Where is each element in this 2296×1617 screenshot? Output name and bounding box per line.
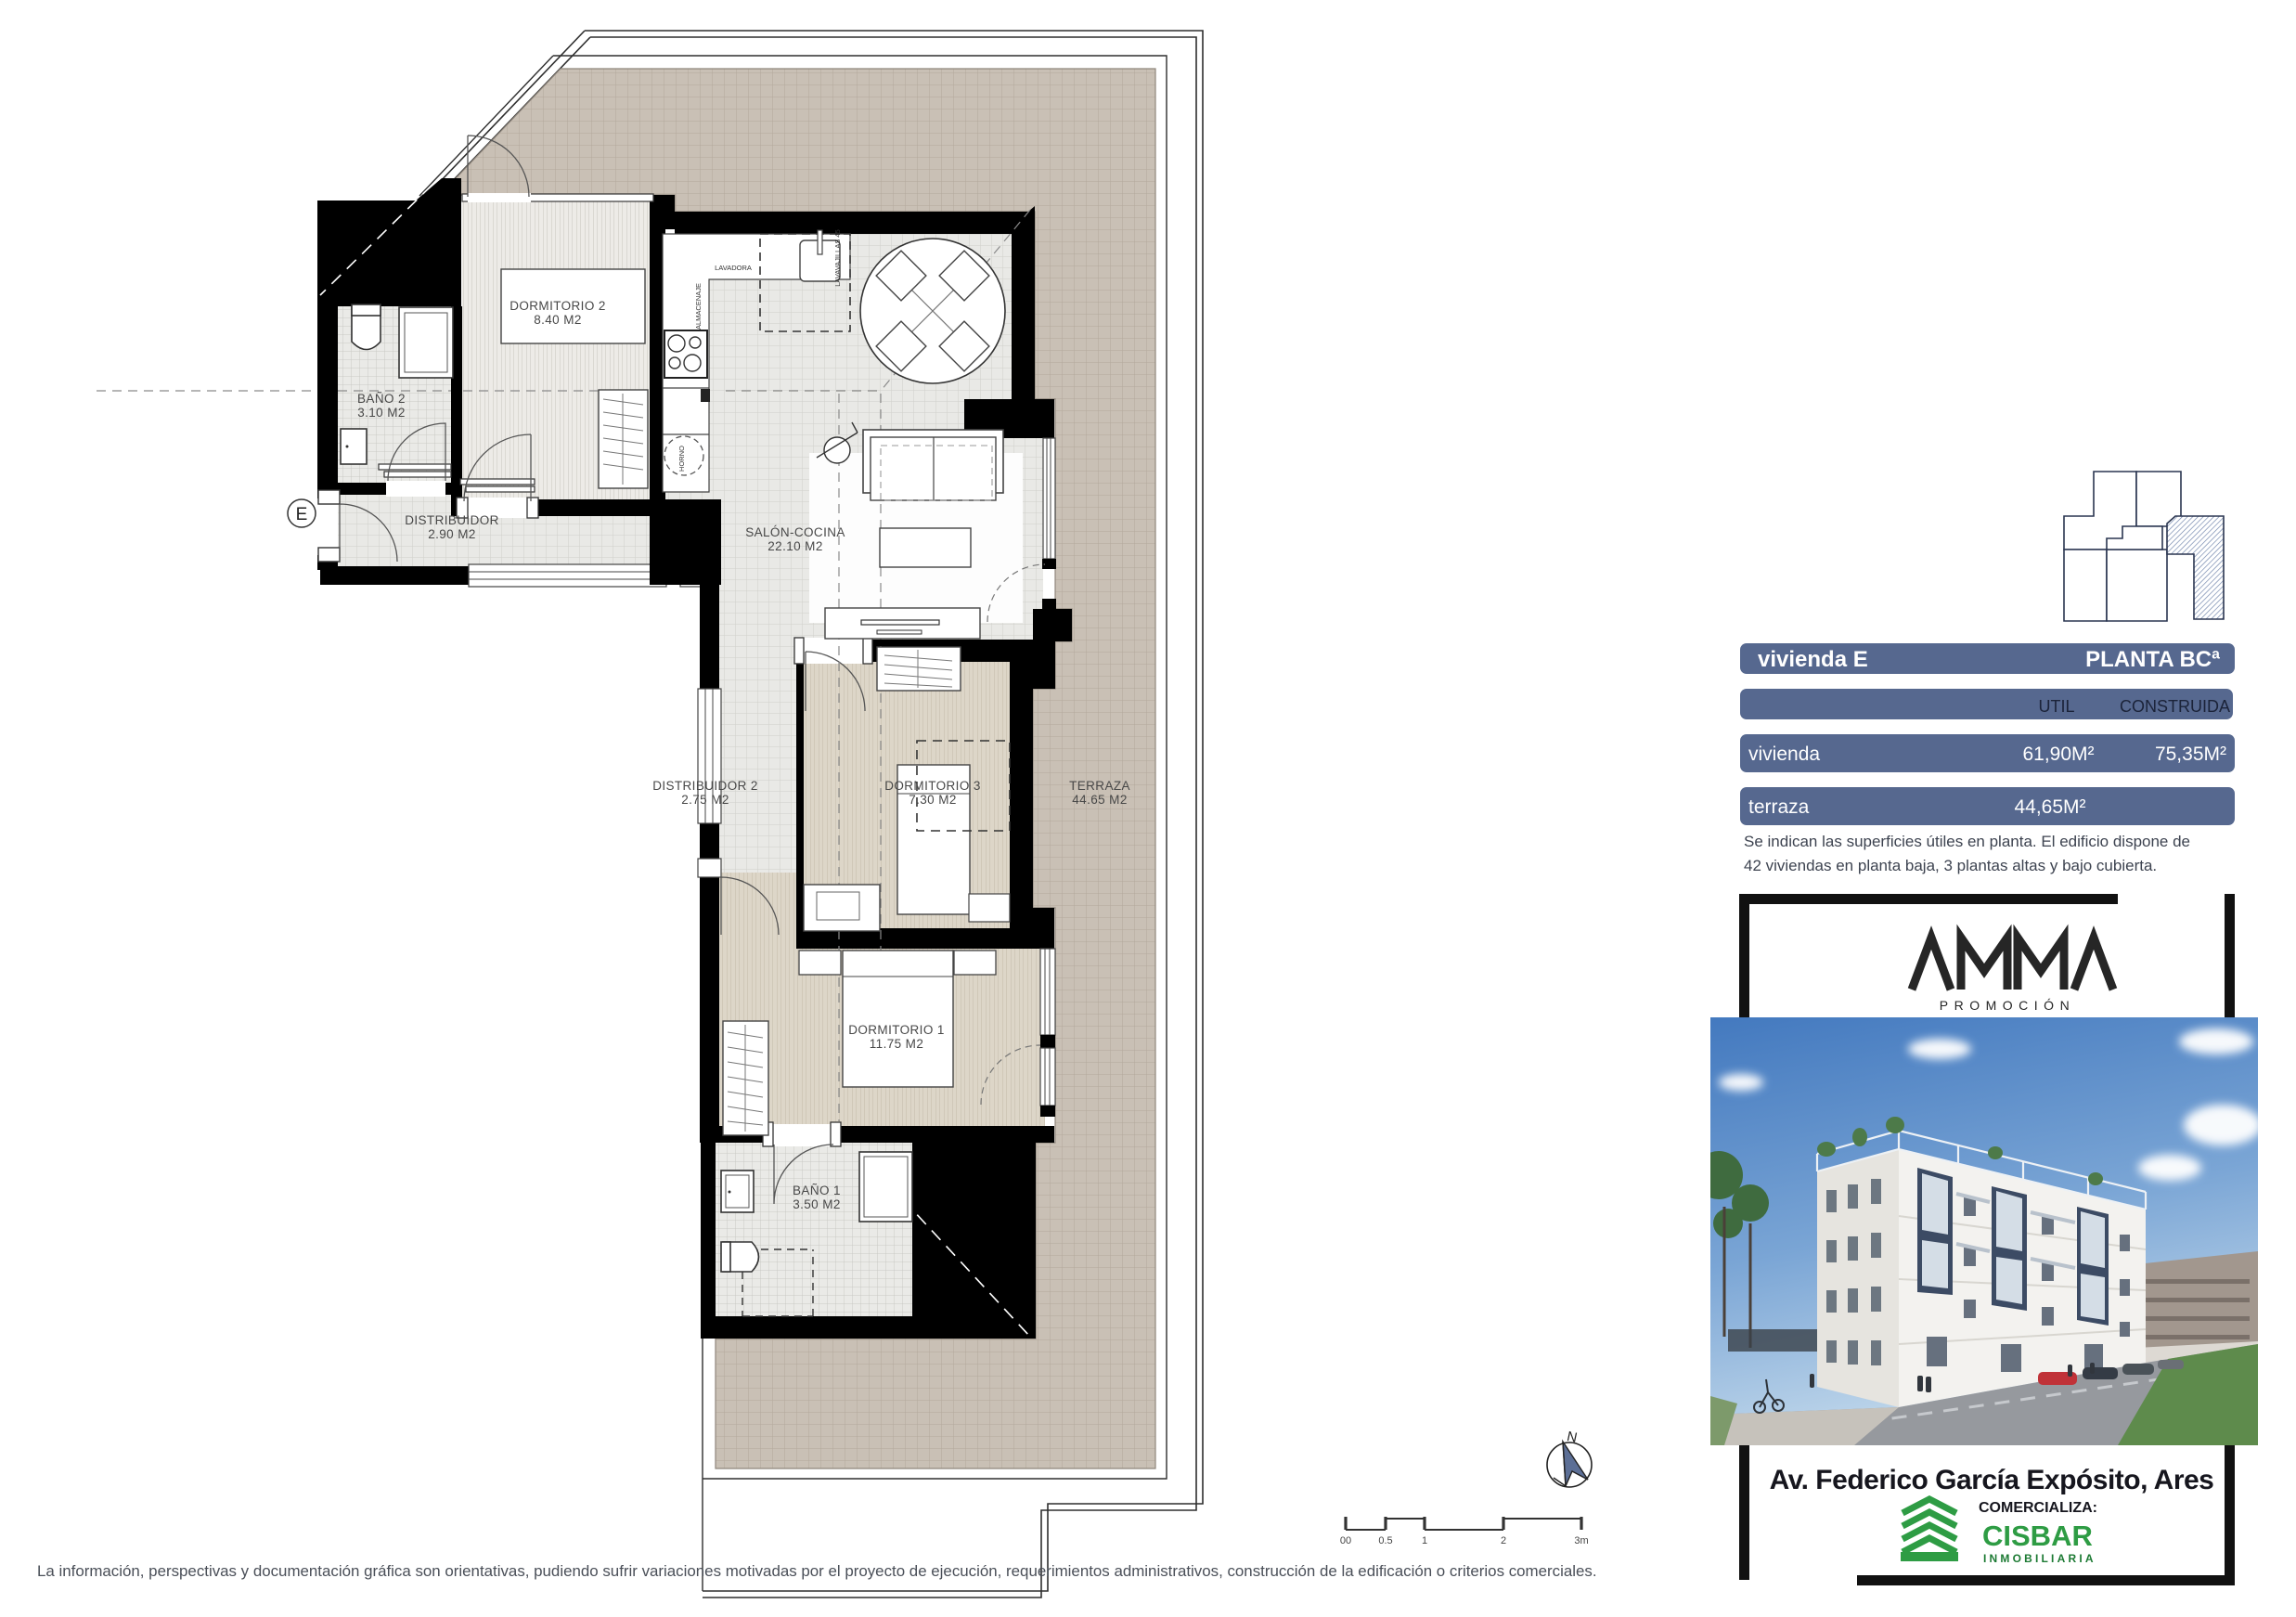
svg-text:CONSTRUIDA: CONSTRUIDA (2120, 697, 2230, 716)
svg-text:LAVADORA: LAVADORA (715, 264, 752, 272)
svg-text:42 viviendas en planta baja, 3: 42 viviendas en planta baja, 3 plantas a… (1744, 857, 2157, 874)
svg-text:TERRAZA: TERRAZA (1069, 779, 1130, 793)
svg-text:PLANTA BCª: PLANTA BCª (2085, 647, 2220, 672)
svg-text:11.75 M2: 11.75 M2 (870, 1037, 924, 1051)
svg-text:vivienda E: vivienda E (1758, 647, 1868, 672)
svg-text:vivienda: vivienda (1748, 744, 1820, 765)
svg-text:BAÑO 2: BAÑO 2 (357, 392, 406, 406)
svg-text:3.50 M2: 3.50 M2 (793, 1197, 841, 1211)
svg-text:COMERCIALIZA:: COMERCIALIZA: (1979, 1500, 2097, 1516)
svg-text:DORMITORIO 3: DORMITORIO 3 (884, 779, 981, 793)
svg-text:SALÓN-COCINA: SALÓN-COCINA (745, 525, 845, 539)
svg-text:DISTRIBUIDOR: DISTRIBUIDOR (405, 513, 499, 527)
svg-text:Av. Federico García Expósito,: Av. Federico García Expósito, Ares (1770, 1465, 2214, 1495)
svg-text:2.90 M2: 2.90 M2 (428, 527, 476, 541)
svg-text:0.5: 0.5 (1378, 1535, 1392, 1546)
svg-text:PROMOCIÓN: PROMOCIÓN (1940, 998, 2075, 1013)
svg-text:44,65M²: 44,65M² (2014, 796, 2085, 818)
svg-text:HORNO: HORNO (677, 446, 686, 472)
svg-text:DISTRIBUIDOR 2: DISTRIBUIDOR 2 (652, 779, 758, 793)
svg-text:La información, perspectivas y: La información, perspectivas y documenta… (37, 1562, 1597, 1580)
svg-text:LAVAVAJILLAS 45: LAVAVAJILLAS 45 (833, 229, 842, 287)
svg-text:3.10 M2: 3.10 M2 (357, 406, 406, 420)
svg-text:E: E (296, 505, 308, 524)
svg-text:44.65 M2: 44.65 M2 (1072, 793, 1128, 807)
svg-text:BAÑO 1: BAÑO 1 (793, 1184, 841, 1197)
svg-text:ALMACENAJE: ALMACENAJE (694, 283, 703, 330)
svg-text:1: 1 (1422, 1535, 1427, 1546)
svg-text:75,35M²: 75,35M² (2155, 744, 2226, 765)
svg-text:DORMITORIO 1: DORMITORIO 1 (848, 1023, 945, 1037)
svg-text:2.75 M2: 2.75 M2 (681, 793, 729, 807)
svg-text:7.30 M2: 7.30 M2 (909, 793, 957, 807)
svg-text:00: 00 (1340, 1535, 1351, 1546)
svg-text:DORMITORIO 2: DORMITORIO 2 (510, 299, 606, 313)
svg-text:UTIL: UTIL (2038, 697, 2074, 716)
svg-text:61,90M²: 61,90M² (2022, 744, 2094, 765)
svg-text:2: 2 (1501, 1535, 1506, 1546)
svg-text:terraza: terraza (1748, 796, 1810, 818)
svg-text:22.10 M2: 22.10 M2 (767, 539, 823, 553)
svg-text:Se indican las superficies úti: Se indican las superficies útiles en pla… (1744, 833, 2190, 850)
svg-text:INMOBILIARIA: INMOBILIARIA (1983, 1552, 2096, 1565)
svg-text:8.40 M2: 8.40 M2 (534, 313, 582, 327)
svg-text:CISBAR: CISBAR (1982, 1520, 2093, 1552)
svg-text:3m: 3m (1574, 1535, 1588, 1546)
